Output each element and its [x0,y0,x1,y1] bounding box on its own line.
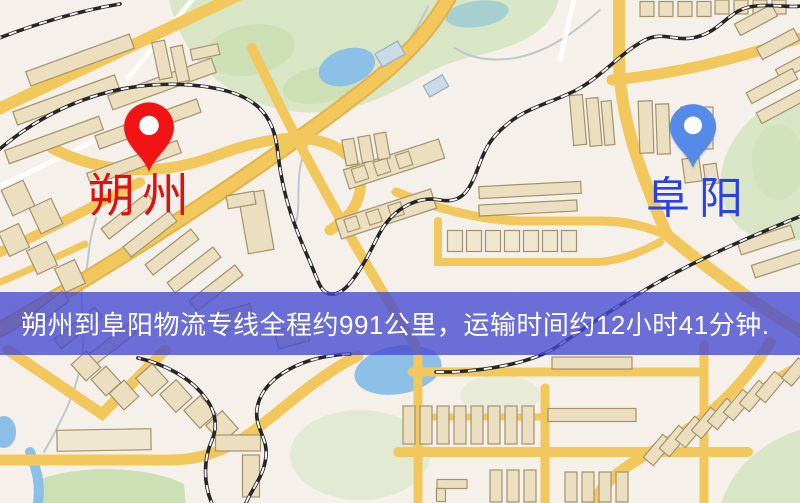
route-info-text: 朔州到阜阳物流专线全程约991公里，运输时间约12小时41分钟. [21,305,769,342]
destination-city-label: 阜阳 [646,177,752,221]
map-image: 朔州 阜阳 朔州到阜阳物流专线全程约991公里，运输时间约12小时41分钟. [0,0,800,503]
origin-city-label: 朔州 [88,172,196,219]
map-canvas [0,0,800,503]
route-info-banner: 朔州到阜阳物流专线全程约991公里，运输时间约12小时41分钟. [0,292,800,355]
